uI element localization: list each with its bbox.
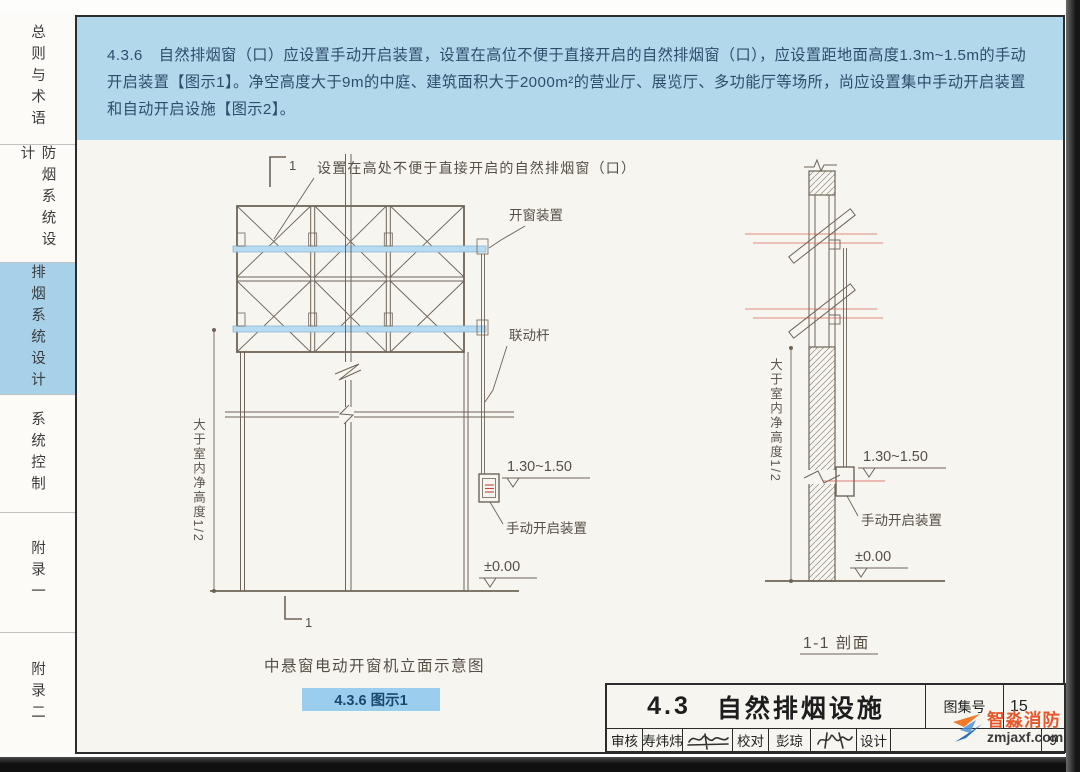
figure1-badge: 4.3.6 图示1 [334, 692, 407, 709]
section-cut-marker-bottom [285, 596, 302, 619]
photo-edge-bottom [0, 757, 1080, 772]
section-marker-number: 1 [289, 158, 296, 173]
sheet-title: 4.3自然排烟设施 [607, 685, 926, 728]
manual-device-label: 手动开启装置 [861, 513, 942, 528]
linkrod-label: 联动杆 [509, 328, 550, 343]
clause-paragraph: 4.3.6自然排烟窗（口）应设置手动开启装置，设置在高位不便于直接开启的自然排烟… [107, 42, 1037, 123]
proofreader-signature [811, 729, 857, 751]
height-dimension [789, 346, 793, 583]
title-block-row2: 审核 寿炜炜 校对 彭琼 设计 9 [607, 729, 1064, 751]
sidebar-tab-label: 系统控制 [27, 411, 48, 497]
lower-jambs [241, 352, 469, 591]
designer-signature [891, 729, 1042, 751]
level-mark-handle: 1.30~1.50 [507, 459, 572, 475]
window-annotation-label: 设置在高处不便于直接开启的自然排烟窗（口） [317, 160, 636, 176]
centre-pole [335, 154, 361, 591]
reviewer-signature [683, 729, 733, 751]
leader-line [485, 346, 507, 402]
leader-line [489, 226, 525, 248]
opener-label: 开窗装置 [509, 207, 563, 223]
sidebar-tab-label: 防烟系统设计 [17, 145, 59, 262]
sidebar-tab-label: 总则与术语 [27, 24, 48, 132]
figure2-dim-label: 大于室内净高度1/2 [766, 358, 785, 508]
sidebar-tab-appendix-1[interactable]: 附录一 [0, 513, 75, 633]
level-mark-ground: ±0.00 [855, 549, 891, 565]
proofreader-label: 校对 [733, 729, 769, 751]
level-triangle [507, 478, 519, 487]
transom-beam [225, 405, 514, 424]
chapter-sidebar: 总则与术语 防烟系统设计 排烟系统设计 系统控制 附录一 附录二 [0, 12, 75, 753]
linkage-bar-upper [233, 246, 486, 252]
title-block-row1: 4.3自然排烟设施 图集号 15 [607, 685, 1064, 729]
lintel [809, 171, 835, 195]
leader-line [847, 496, 858, 516]
sidebar-tab-smoke-protection[interactable]: 防烟系统设计 [0, 145, 75, 263]
sidebar-tab-label: 附录二 [27, 661, 48, 726]
manual-device-box [479, 474, 499, 502]
figure1-dim-label: 大于室内净高度1/2 [189, 418, 208, 568]
level-mark-handle: 1.30~1.50 [863, 449, 928, 465]
section-marker-number: 1 [305, 615, 312, 630]
figure2-caption: 1-1 剖面 [803, 634, 870, 652]
reviewer-name: 寿炜炜 [643, 729, 683, 751]
sheet-section-number: 4.3 [647, 692, 691, 721]
scanned-standard-page: 总则与术语 防烟系统设计 排烟系统设计 系统控制 附录一 附录二 4.3.6自然… [0, 0, 1080, 772]
technical-drawing: 1 设置在高处不便于直接开启的自然排烟窗（口） [77, 140, 1062, 753]
proofreader-name: 彭琼 [769, 729, 811, 751]
linkage-rod [844, 248, 847, 467]
sidebar-tab-smoke-exhaust[interactable]: 排烟系统设计 [0, 263, 75, 395]
atlas-number-label: 图集号 [926, 685, 1004, 728]
pivot-window-panel-upper [789, 209, 855, 263]
manual-device-label: 手动开启装置 [506, 521, 587, 536]
level-triangle [863, 468, 875, 477]
height-dimension [212, 328, 216, 593]
linkage-bar-lower [233, 326, 486, 332]
clause-number: 4.3.6 [107, 47, 143, 64]
section-cut-marker-top [270, 157, 286, 187]
leader-line [490, 502, 503, 524]
sidebar-tab-label: 附录一 [27, 540, 48, 605]
title-block: 4.3自然排烟设施 图集号 15 审核 寿炜炜 校对 彭琼 设计 9 [605, 683, 1066, 753]
level-triangle [855, 568, 867, 577]
pivot-axis-lines [745, 234, 883, 318]
figure1-elevation: 1 设置在高处不便于直接开启的自然排烟窗（口） [210, 154, 636, 711]
sidebar-tab-general[interactable]: 总则与术语 [0, 12, 75, 145]
linkage-rod [482, 254, 485, 474]
level-triangle [484, 578, 496, 587]
sidebar-tab-label: 排烟系统设计 [27, 264, 48, 393]
clause-header: 4.3.6自然排烟窗（口）应设置手动开启装置，设置在高位不便于直接开启的自然排烟… [77, 17, 1063, 140]
clause-body-text: 自然排烟窗（口）应设置手动开启装置，设置在高位不便于直接开启的自然排烟窗（口），… [107, 47, 1026, 118]
reviewer-label: 审核 [607, 729, 643, 751]
drawing-sheet-frame: 4.3.6自然排烟窗（口）应设置手动开启装置，设置在高位不便于直接开启的自然排烟… [75, 15, 1065, 754]
figure1-caption: 中悬窗电动开窗机立面示意图 [264, 656, 485, 675]
designer-label: 设计 [857, 729, 891, 751]
sheet-title-text: 自然排烟设施 [717, 689, 885, 725]
pivot-window-panel-lower [789, 284, 855, 338]
level-mark-ground: ±0.00 [484, 559, 520, 575]
wall-section [804, 347, 840, 581]
sidebar-tab-appendix-2[interactable]: 附录二 [0, 633, 75, 753]
break-symbol [804, 160, 837, 171]
atlas-number-value: 15 [1004, 685, 1064, 728]
sidebar-tab-system-control[interactable]: 系统控制 [0, 395, 75, 513]
photo-edge-right [1066, 0, 1080, 772]
page-number: 9 [1042, 729, 1064, 751]
